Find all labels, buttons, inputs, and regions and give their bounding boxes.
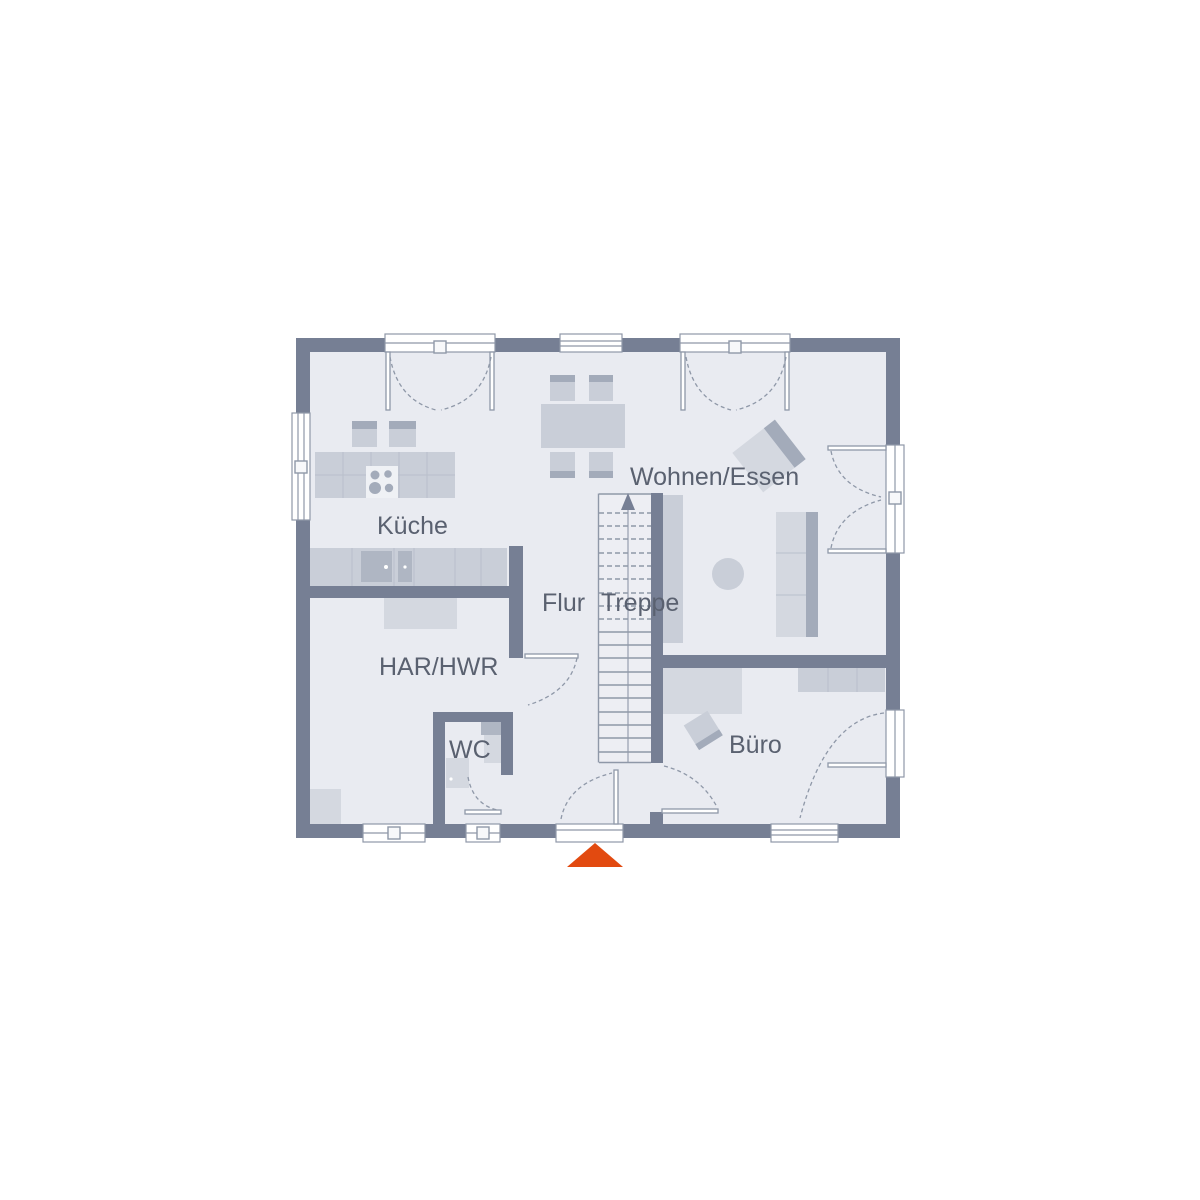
window-marker <box>477 827 489 839</box>
office-cabinets <box>798 668 885 692</box>
window-bottom-utility <box>363 824 425 842</box>
french-door-top-right <box>680 334 790 353</box>
window-marker <box>729 341 741 353</box>
cooktop <box>366 466 398 498</box>
room-label-flur: Flur <box>542 589 585 617</box>
floor-plan-page: Küche Wohnen/Essen Flur Treppe HAR/HWR W… <box>0 0 1200 1200</box>
entrance-marker-icon <box>567 843 623 867</box>
window-left <box>292 413 310 520</box>
stairwell-floor <box>598 493 651 763</box>
room-label-buero: Büro <box>729 731 782 759</box>
entrance-door <box>556 824 623 842</box>
french-door-top-left <box>385 334 495 353</box>
window-bottom-office <box>771 824 838 842</box>
coffee-table <box>712 558 744 590</box>
sideboard <box>663 495 683 643</box>
window-top-center <box>560 334 622 352</box>
door-office-right <box>886 710 904 777</box>
floor-plan: Küche Wohnen/Essen Flur Treppe HAR/HWR W… <box>0 0 1200 1200</box>
room-label-wc: WC <box>449 736 491 764</box>
sofa <box>776 512 818 637</box>
window-marker <box>388 827 400 839</box>
room-label-kueche: Küche <box>377 512 448 540</box>
french-door-right <box>886 445 904 553</box>
window-bottom-wc <box>466 824 500 842</box>
window-marker <box>295 461 307 473</box>
room-label-wohnen-essen: Wohnen/Essen <box>630 463 799 491</box>
window-marker <box>434 341 446 353</box>
desk <box>663 668 742 714</box>
dining-table <box>541 404 625 448</box>
utility-box <box>310 789 341 824</box>
kitchen-island <box>315 452 455 498</box>
room-label-har-hwr: HAR/HWR <box>379 653 498 681</box>
window-marker <box>889 492 901 504</box>
utility-shelf <box>384 598 457 629</box>
room-label-treppe: Treppe <box>601 589 679 617</box>
kitchen-counter <box>310 548 507 586</box>
